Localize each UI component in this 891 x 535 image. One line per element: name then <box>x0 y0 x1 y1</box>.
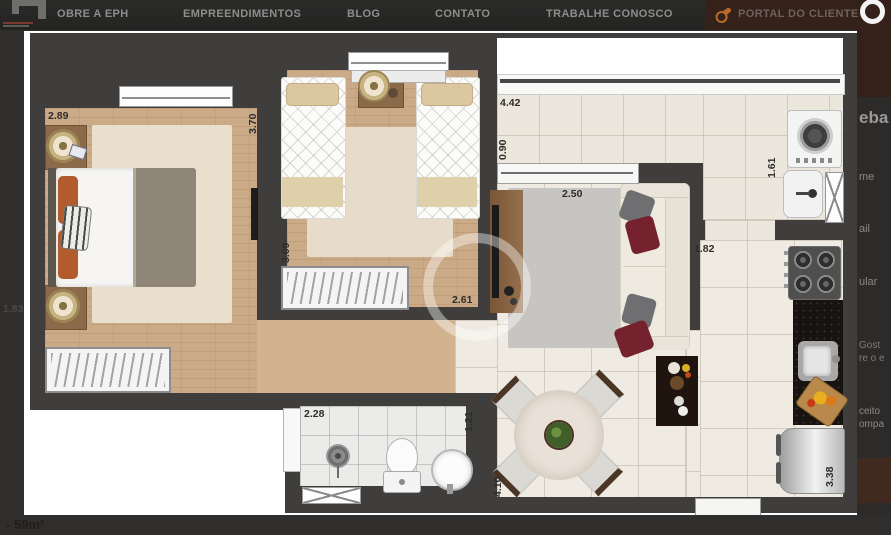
washer-drum <box>795 116 835 156</box>
burner <box>817 275 835 293</box>
toilet-button <box>399 479 405 485</box>
nav-item-sobre[interactable]: OBRE A EPH <box>57 8 129 20</box>
balcony-sliding-door <box>497 163 639 184</box>
decor-flowers <box>682 364 690 372</box>
table-lamp <box>358 70 390 102</box>
decor-plate <box>668 362 680 374</box>
portal-cliente-panel <box>857 30 891 97</box>
eph-logo <box>38 0 46 19</box>
hanging-clothes <box>287 272 403 304</box>
bedroom2-window <box>348 52 449 71</box>
logo-tagline <box>3 25 29 27</box>
table-lamp <box>45 288 81 324</box>
nav-item-contato[interactable]: CONTATO <box>435 8 490 20</box>
form-message-fragment: Gost <box>859 340 880 351</box>
double-bed <box>48 168 193 287</box>
stove <box>788 246 841 300</box>
form-field-email-fragment[interactable]: ail <box>859 223 870 235</box>
single-bed <box>281 77 344 217</box>
burner <box>794 275 812 293</box>
plan-background <box>497 38 843 74</box>
watermark <box>423 233 531 341</box>
shower-pipe <box>337 466 339 478</box>
single-bed <box>416 77 478 217</box>
fridge-handle <box>776 434 781 456</box>
dim-kitchen-depth: 3.38 <box>824 467 836 487</box>
decor-plate <box>678 406 688 416</box>
bedroom1-window <box>119 86 233 107</box>
dim-service-width: 1.61 <box>766 158 778 178</box>
eph-logo <box>12 0 19 14</box>
contact-form-panel <box>857 30 891 515</box>
form-consent-fragment: ompa <box>859 419 884 430</box>
washer-controls <box>796 158 834 163</box>
form-field-name-fragment[interactable]: me <box>859 171 874 183</box>
form-consent-fragment: ceito <box>859 406 880 417</box>
dining-table <box>514 390 604 480</box>
kitchen-sink <box>798 341 838 381</box>
toilet-tank <box>383 471 421 493</box>
dim-bathroom-depth: 1.21 <box>463 412 475 432</box>
plan-area-caption: - 59m² <box>6 517 44 532</box>
bathroom-window <box>302 487 361 504</box>
sliding-door-track <box>501 172 633 174</box>
clipped-dimension-label: 1.83 <box>3 303 23 315</box>
sofa-backrest <box>665 187 688 346</box>
washing-machine <box>787 110 842 168</box>
form-title-fragment: eba <box>859 108 888 128</box>
hanging-clothes <box>51 353 165 387</box>
bed-blanket <box>133 168 196 287</box>
railing-glass-line <box>500 79 840 83</box>
dim-balcony-length: 4.42 <box>500 97 520 109</box>
nav-item-portal[interactable]: PORTAL DO CLIENTE <box>738 8 859 20</box>
dim-kitchen-width: 1.82 <box>694 243 714 255</box>
fridge-handle <box>776 462 781 484</box>
burner <box>794 251 812 269</box>
bed-blanket <box>282 177 343 207</box>
service-shaft <box>825 172 844 223</box>
shower-drain <box>326 444 350 468</box>
bed-headboard <box>48 168 56 287</box>
form-submit-button[interactable] <box>857 458 891 503</box>
sink-faucet <box>447 484 453 494</box>
decor-flowers <box>685 372 691 378</box>
bedroom1-wardrobe <box>45 347 171 393</box>
table-plant <box>546 422 572 448</box>
hall-floor <box>257 320 455 393</box>
dim-living-width: 2.50 <box>562 188 582 200</box>
dim-dining-length: 4.10 <box>492 477 504 497</box>
nav-item-empreendimentos[interactable]: EMPREENDIMENTOS <box>183 8 301 20</box>
bed-pillow <box>421 83 473 106</box>
sink-basin <box>803 346 831 376</box>
entry-door <box>695 498 761 516</box>
dim-bedroom1-width: 2.89 <box>48 110 68 122</box>
striped-pillow <box>60 205 92 252</box>
bed-blanket <box>417 177 477 207</box>
nav-item-trabalhe[interactable]: TRABALHE CONOSCO <box>546 8 673 20</box>
stove-knobs <box>784 251 788 295</box>
bedroom2-wardrobe <box>281 266 409 310</box>
loader-circle-icon <box>860 0 885 24</box>
service-door-opening <box>705 220 775 240</box>
bathroom-door <box>283 408 301 472</box>
logo-tagline <box>3 22 33 24</box>
sink-faucet <box>832 355 840 363</box>
dim-bedroom2-depth: 3.09 <box>280 243 292 263</box>
dim-bathroom-width: 2.28 <box>304 408 324 420</box>
tub-spout <box>796 192 810 195</box>
dim-balcony-depth: 0.90 <box>497 140 509 160</box>
nav-item-blog[interactable]: BLOG <box>347 8 380 20</box>
sideboard <box>656 356 698 426</box>
page: OBRE A EPH EMPREENDIMENTOS BLOG CONTATO … <box>0 0 891 535</box>
decor-bowl <box>670 376 684 390</box>
bedroom1-tv <box>251 188 258 240</box>
dim-bedroom1-depth: 3.70 <box>247 114 259 134</box>
bed-pillow <box>286 83 339 106</box>
burner <box>817 251 835 269</box>
form-field-phone-fragment[interactable]: ular <box>859 276 877 288</box>
balcony-railing <box>497 74 845 95</box>
decor-plant <box>388 88 398 98</box>
top-nav: OBRE A EPH EMPREENDIMENTOS BLOG CONTATO … <box>0 0 891 30</box>
laundry-tub <box>783 170 823 218</box>
sofa-seam <box>623 266 667 267</box>
form-message-fragment: re o e <box>859 353 885 364</box>
bottom-bar: - 59m² <box>0 515 891 535</box>
decor-plate <box>674 396 684 406</box>
